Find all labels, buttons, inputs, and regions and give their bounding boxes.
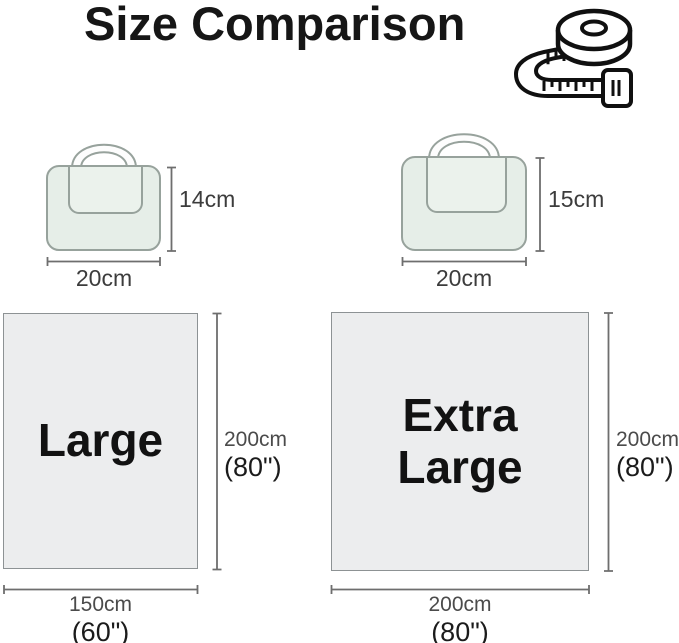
pouch-small-height-line (167, 168, 176, 252)
large-height-inch: (80") (224, 452, 287, 482)
large-height-cm: 200cm (224, 428, 287, 452)
extra-large-height-labels: 200cm (80") (616, 428, 679, 482)
large-width-labels: 150cm (60") (3, 593, 198, 643)
large-width-cm: 150cm (3, 593, 198, 617)
extra-large-height-cm: 200cm (616, 428, 679, 452)
extra-large-width-labels: 200cm (80") (331, 593, 589, 643)
pouch-small-height-label: 14cm (179, 186, 235, 213)
pouch-large-handle (429, 134, 499, 159)
extra-large-width-cm: 200cm (331, 593, 589, 617)
pouch-small-illustration (47, 145, 160, 250)
pouch-large-illustration (402, 134, 526, 250)
extra-large-panel-label: Extra Large (355, 390, 565, 493)
large-width-inch: (60") (3, 617, 198, 643)
extra-large-height-inch: (80") (616, 452, 679, 482)
pouch-large-height-line (536, 158, 545, 251)
large-height-line (213, 314, 222, 570)
extra-large-panel: Extra Large (331, 312, 589, 571)
large-panel: Large (3, 313, 198, 569)
pouch-large-width-label: 20cm (402, 265, 526, 292)
large-panel-label: Large (38, 415, 163, 467)
size-comparison-infographic: Size Comparison (0, 0, 679, 643)
pouch-small-handle (72, 145, 136, 168)
extra-large-height-line (604, 313, 613, 571)
pouch-large-flap (427, 158, 506, 212)
pouch-small-width-label: 20cm (47, 265, 161, 292)
pouch-large-height-label: 15cm (548, 186, 604, 213)
large-height-labels: 200cm (80") (224, 428, 287, 482)
pouch-small-flap (69, 167, 142, 213)
extra-large-width-inch: (80") (331, 617, 589, 643)
